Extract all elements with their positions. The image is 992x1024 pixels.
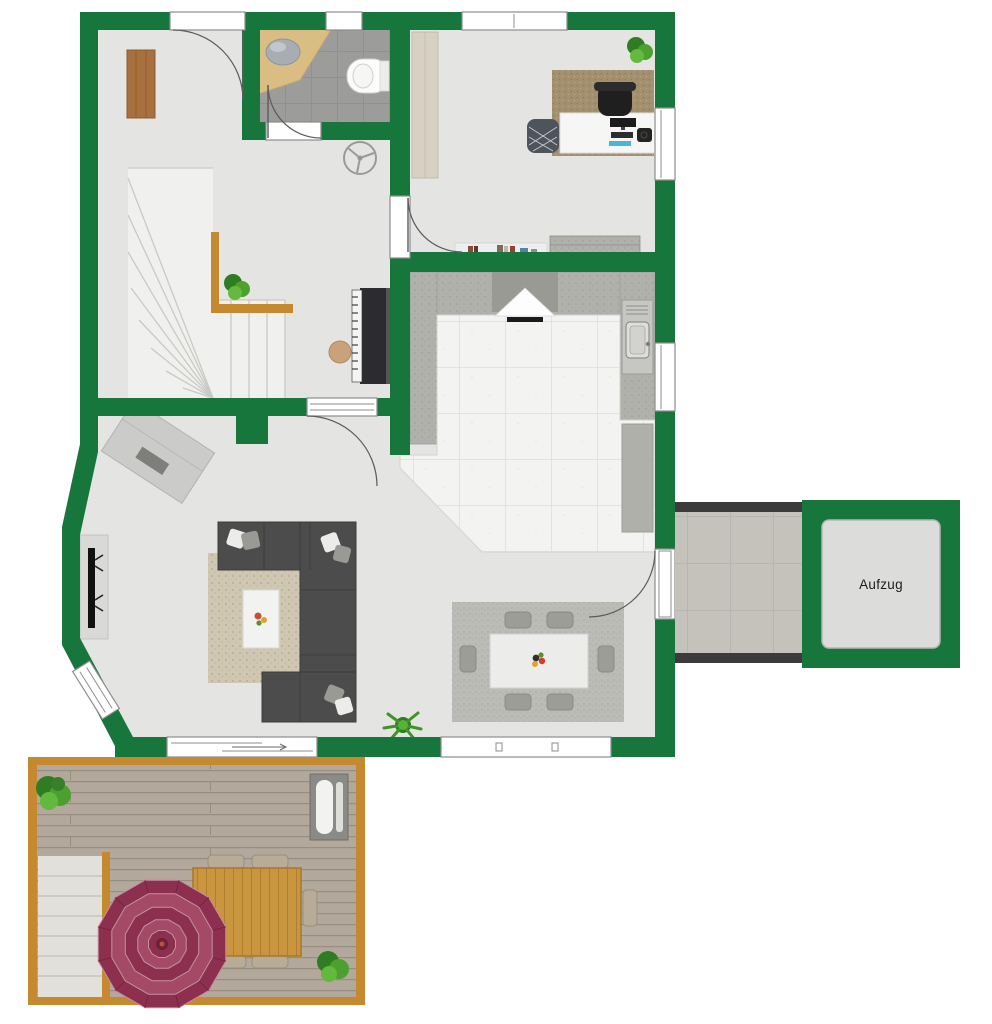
parasol bbox=[98, 880, 226, 1008]
desk-laptop bbox=[609, 141, 631, 146]
desk-keyboard bbox=[611, 132, 633, 138]
tv-unit bbox=[80, 535, 108, 639]
dining-area bbox=[452, 602, 624, 722]
kitchen-sink bbox=[622, 300, 653, 374]
office-pouf bbox=[527, 119, 559, 153]
terrace-chair bbox=[303, 890, 317, 926]
wall-pillar-stub bbox=[236, 416, 268, 444]
terrace-grill bbox=[310, 774, 348, 840]
wall-kitchen-left bbox=[390, 272, 410, 455]
window-bathroom bbox=[326, 12, 362, 30]
window-kitchen-right bbox=[655, 343, 675, 411]
toilet bbox=[347, 59, 389, 93]
office-chair bbox=[594, 82, 636, 116]
window-office-top bbox=[462, 12, 567, 30]
kitchen-tall-cabinet bbox=[622, 424, 653, 532]
washbasin-sink bbox=[266, 39, 300, 65]
corridor-wall-bottom bbox=[675, 653, 805, 663]
terrace-chair bbox=[252, 855, 288, 868]
corridor-wall-top bbox=[675, 502, 805, 512]
terrace-chair bbox=[208, 855, 244, 868]
bathroom bbox=[258, 28, 390, 122]
stair-railing-vertical bbox=[211, 232, 219, 312]
wall-right-corridor-lower bbox=[655, 619, 675, 658]
wall-bathroom-left bbox=[242, 12, 260, 140]
entry-sideboard bbox=[127, 50, 155, 118]
floor-plan-canvas: Aufzug bbox=[0, 0, 992, 1024]
wall-bay-left bbox=[62, 527, 80, 645]
tv-screen bbox=[88, 548, 95, 628]
elevator-label: Aufzug bbox=[859, 577, 903, 592]
piano-stool bbox=[329, 341, 351, 363]
wall-right-lower bbox=[655, 658, 675, 757]
terrace bbox=[28, 757, 365, 1008]
wall-hall-living bbox=[80, 398, 307, 416]
stair-railing-horizontal bbox=[211, 304, 293, 313]
window-office-right bbox=[655, 108, 675, 180]
elevator: Aufzug bbox=[802, 500, 960, 668]
range-hood bbox=[492, 268, 558, 322]
wall-office-bottom bbox=[410, 252, 675, 272]
terrace-sliding-door bbox=[167, 737, 317, 757]
coffee-table bbox=[243, 590, 279, 648]
wall-left-upper bbox=[80, 12, 98, 452]
window-living-bottom bbox=[441, 737, 611, 757]
wall-hall-living-right bbox=[377, 398, 410, 416]
floor-plan-drawing: Aufzug bbox=[0, 0, 992, 1024]
corridor-floor bbox=[675, 512, 805, 653]
wall-right-corridor-upper bbox=[655, 508, 675, 549]
desk-phone bbox=[637, 128, 652, 142]
elevator-corridor bbox=[675, 502, 805, 663]
terrace-chair bbox=[252, 956, 288, 968]
wall-top bbox=[80, 12, 675, 30]
